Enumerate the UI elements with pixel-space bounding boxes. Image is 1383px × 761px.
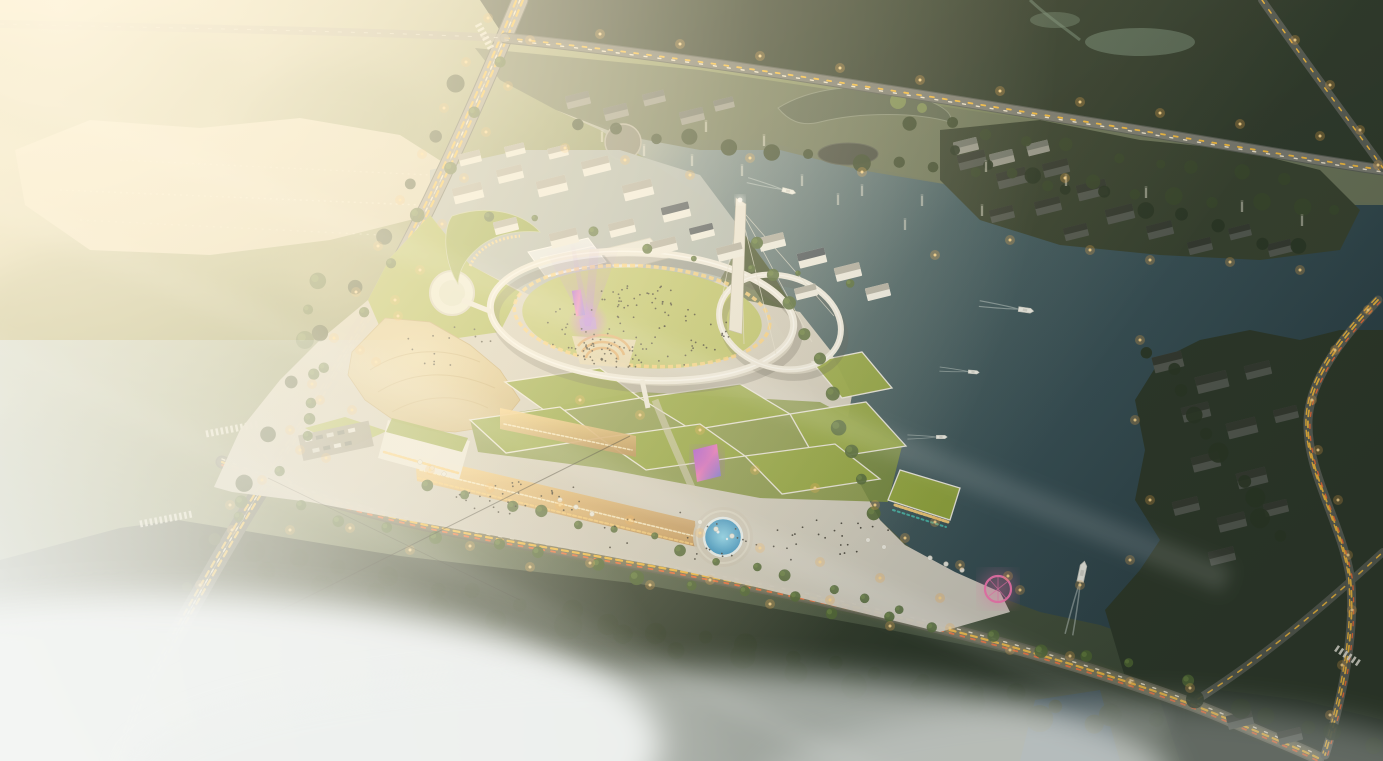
atmosphere-layer (0, 0, 1383, 761)
aerial-rendering-canvas (0, 0, 1383, 761)
rendering-svg (0, 0, 1383, 761)
